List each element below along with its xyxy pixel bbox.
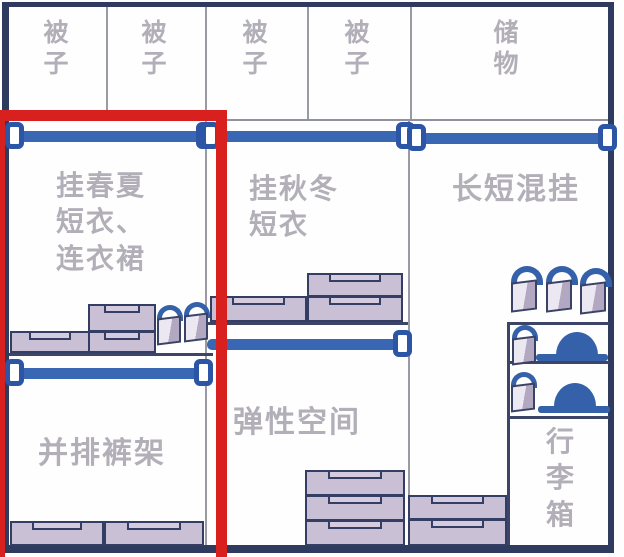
box-handle bbox=[329, 275, 381, 282]
divider-line bbox=[106, 7, 108, 120]
drawer bbox=[408, 519, 507, 546]
rod-bracket bbox=[407, 124, 426, 151]
divider-line bbox=[410, 7, 412, 120]
divider-line bbox=[307, 7, 309, 120]
luggage-label: 行 李 箱 bbox=[544, 424, 578, 533]
quilt-compartment-label: 被 子 bbox=[234, 18, 278, 81]
shelf-line bbox=[507, 416, 609, 419]
rod-bracket bbox=[598, 124, 617, 151]
drawer-handle bbox=[328, 522, 382, 529]
handbag-icon bbox=[512, 325, 538, 364]
label-line: 挂秋冬 bbox=[249, 171, 339, 207]
shelf-line bbox=[205, 322, 408, 325]
rod-bracket bbox=[393, 330, 412, 357]
drawer bbox=[305, 470, 405, 496]
drawer bbox=[305, 495, 405, 521]
handbag-icon bbox=[580, 268, 612, 313]
bag-body bbox=[511, 383, 535, 413]
drawer-handle bbox=[328, 472, 382, 479]
quilt-compartment-label: 被 子 bbox=[336, 18, 380, 81]
storage-box bbox=[307, 273, 403, 297]
autumn-winter-hang-label: 挂秋冬 短衣 bbox=[249, 171, 339, 244]
bag-body bbox=[546, 279, 572, 312]
box-handle bbox=[329, 298, 381, 305]
quilt-compartment-label: 被 子 bbox=[35, 18, 79, 81]
hat-base bbox=[536, 354, 608, 361]
flexible-space-label: 弹性空间 bbox=[233, 405, 361, 441]
storage-box bbox=[307, 296, 403, 322]
drawer-handle bbox=[328, 497, 382, 504]
handbag-icon bbox=[511, 266, 543, 311]
bag-body bbox=[580, 281, 606, 314]
label-line: 短衣 bbox=[249, 207, 339, 243]
drawer-handle bbox=[431, 497, 484, 504]
quilt-compartment-label: 被 子 bbox=[133, 18, 177, 81]
hat-base bbox=[538, 406, 610, 413]
drawer bbox=[408, 495, 507, 520]
hanging-rod bbox=[208, 131, 408, 142]
drawer bbox=[305, 520, 405, 546]
highlight-red-box bbox=[0, 110, 227, 557]
bag-body bbox=[512, 336, 536, 366]
bag-body bbox=[511, 279, 537, 312]
shelf-unit-divider bbox=[507, 322, 510, 545]
wardrobe-layout-diagram: 被 子 被 子 被 子 被 子 储 物 挂春夏 短衣、 连衣裙 挂秋冬 短衣 长… bbox=[0, 0, 624, 557]
drawer-handle bbox=[431, 521, 484, 528]
divider-line bbox=[205, 7, 207, 120]
handbag-icon bbox=[511, 372, 537, 411]
storage-compartment-label: 储 物 bbox=[485, 18, 529, 81]
box-handle bbox=[232, 298, 284, 305]
hanging-rod bbox=[207, 339, 405, 350]
handbag-icon bbox=[546, 266, 578, 311]
hanging-rod bbox=[414, 133, 610, 144]
mixed-hang-label: 长短混挂 bbox=[452, 172, 580, 208]
